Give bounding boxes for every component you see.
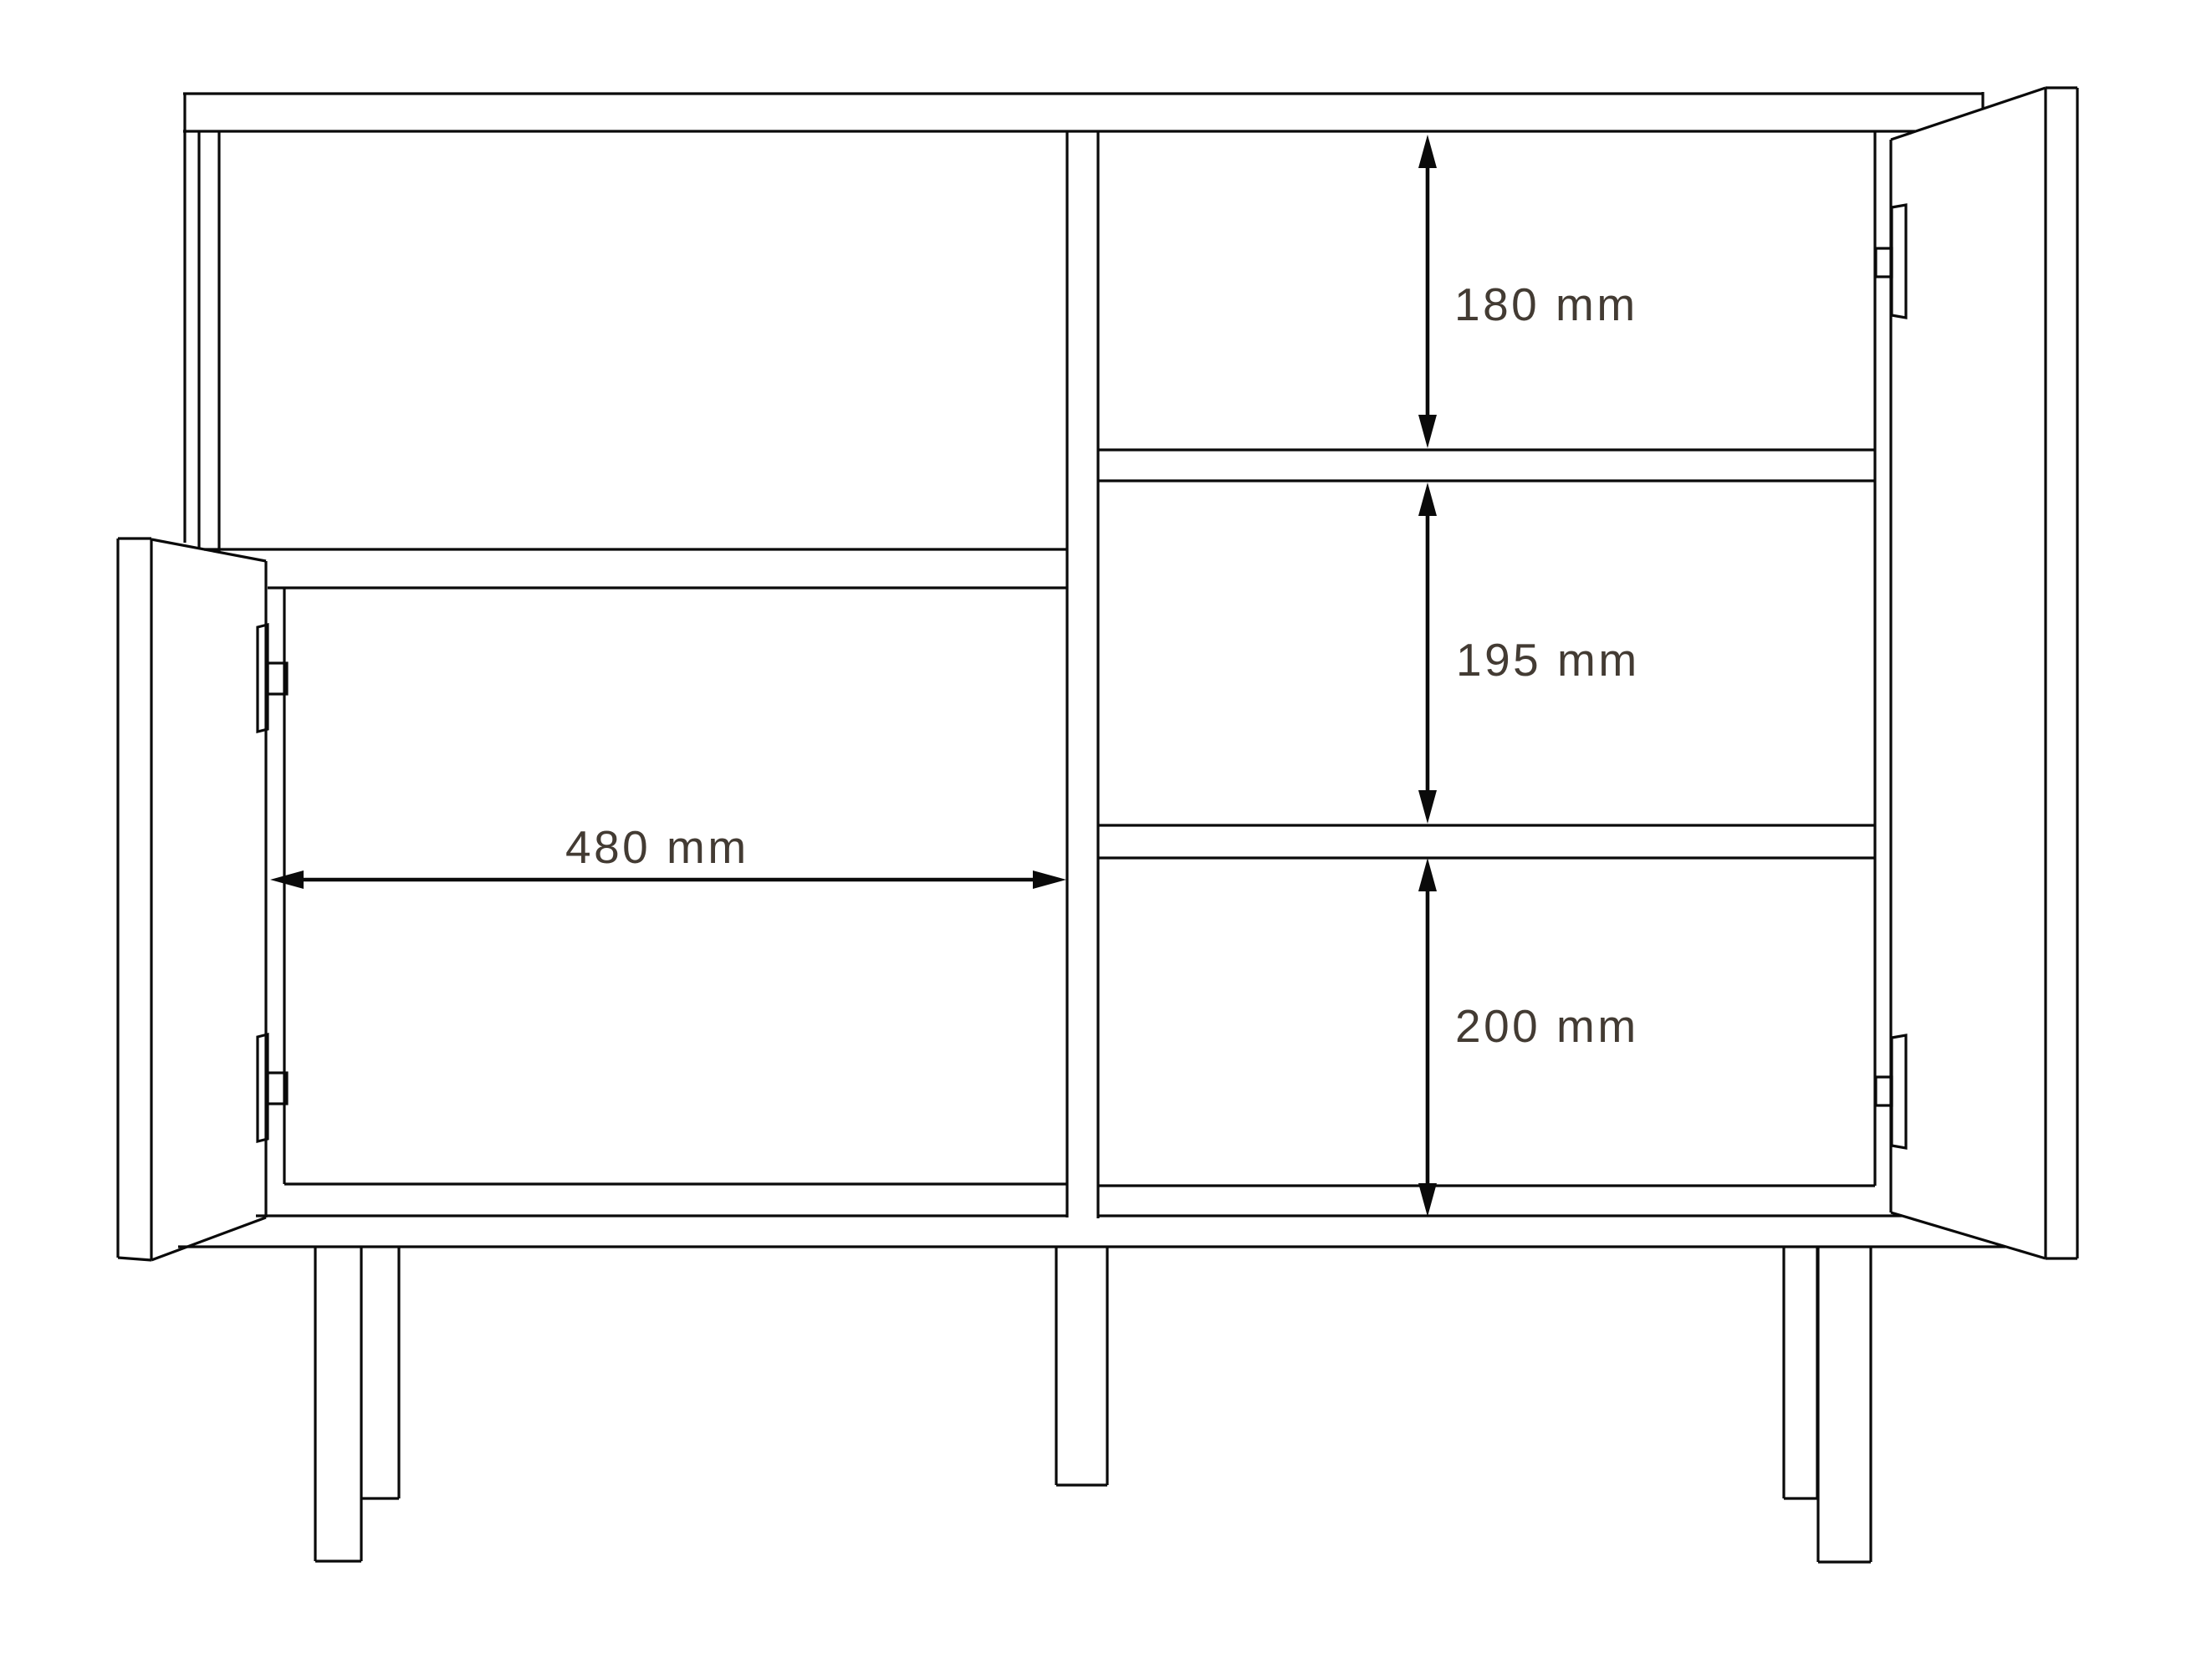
svg-text:480 mm: 480 mm [565, 821, 749, 873]
svg-text:200 mm: 200 mm [1455, 1000, 1639, 1052]
svg-text:195 mm: 195 mm [1456, 634, 1640, 686]
svg-text:180 mm: 180 mm [1454, 278, 1638, 330]
